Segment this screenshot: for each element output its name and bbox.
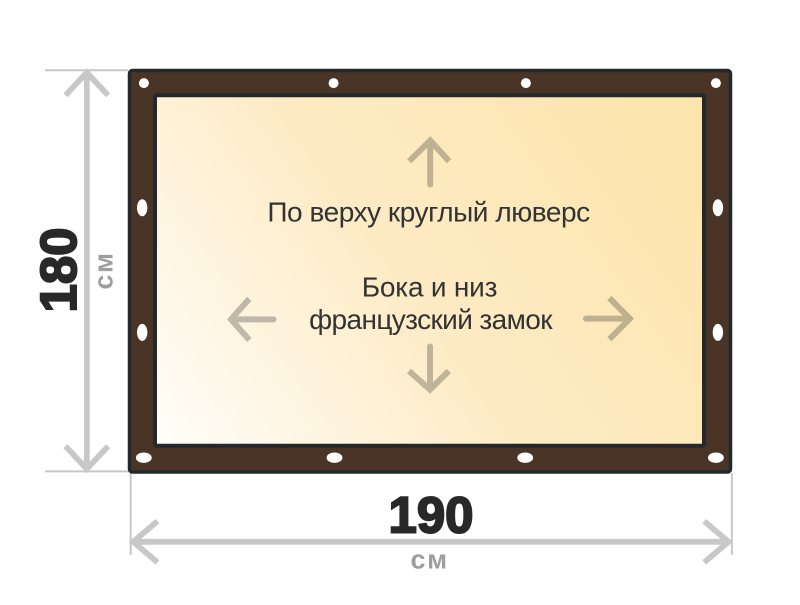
svg-text:180: 180 xyxy=(30,227,87,312)
svg-text:Бока и низ: Бока и низ xyxy=(362,272,498,303)
svg-text:французский замок: французский замок xyxy=(309,304,553,335)
svg-text:см: см xyxy=(410,545,448,575)
svg-text:190: 190 xyxy=(388,487,473,544)
svg-text:см: см xyxy=(88,251,118,289)
svg-text:По верху круглый люверс: По верху круглый люверс xyxy=(267,197,590,228)
